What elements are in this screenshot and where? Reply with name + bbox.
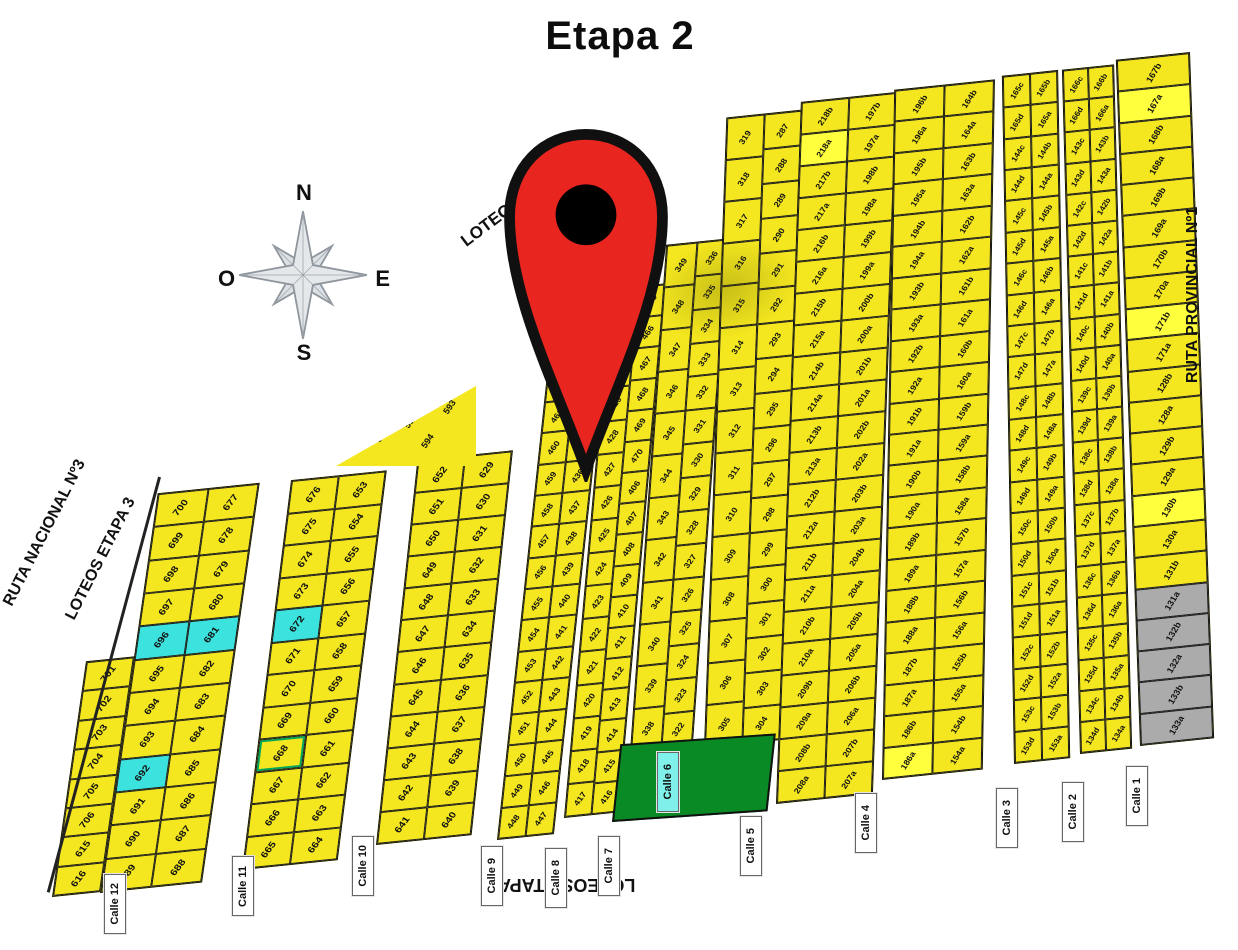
lot-211b: 211b <box>785 543 834 580</box>
lot-408: 408 <box>614 532 643 566</box>
lot-439: 439 <box>552 552 583 586</box>
lot-438: 438 <box>556 521 587 555</box>
lot-458: 458 <box>532 493 563 527</box>
location-pin-icon[interactable] <box>488 120 684 482</box>
lot-147a: 147a <box>1035 352 1063 386</box>
lot-642: 642 <box>381 775 431 812</box>
lot-658: 658 <box>314 633 365 670</box>
lot-645: 645 <box>391 680 441 717</box>
lot-135a: 135a <box>1104 655 1130 689</box>
lot-330: 330 <box>681 441 714 478</box>
green-park-area <box>612 733 776 822</box>
lot-203b: 203b <box>835 475 884 512</box>
lot-668: 668 <box>255 735 306 772</box>
lot-413: 413 <box>600 687 629 721</box>
street-label-calle-7: Calle 7 <box>598 836 620 896</box>
lot-140b: 140b <box>1095 314 1121 348</box>
lot-669: 669 <box>259 702 310 739</box>
lot-144c: 144c <box>1004 136 1032 170</box>
lot-653: 653 <box>335 471 386 508</box>
lot-150a: 150a <box>1038 539 1066 573</box>
lot-306: 306 <box>707 659 746 705</box>
lot-289: 289 <box>761 180 800 219</box>
lot-140c: 140c <box>1070 316 1096 350</box>
lot-294: 294 <box>755 355 794 394</box>
lot-424: 424 <box>586 551 615 587</box>
lot-423: 423 <box>583 584 612 620</box>
lot-207b: 207b <box>826 729 875 766</box>
lot-202b: 202b <box>837 411 886 448</box>
lot-318: 318 <box>724 156 763 202</box>
lot-209b: 209b <box>780 671 829 708</box>
lot-139c: 139c <box>1071 378 1097 412</box>
lot-211a: 211a <box>784 575 833 612</box>
lot-153b: 153b <box>1041 695 1069 729</box>
lot-212a: 212a <box>786 512 835 549</box>
lot-205b: 205b <box>830 602 879 639</box>
lot-141c: 141c <box>1068 254 1094 288</box>
lot-142d: 142d <box>1067 223 1093 257</box>
lot-197a: 197a <box>847 125 896 162</box>
street-label-calle-2: Calle 2 <box>1062 782 1084 842</box>
compass-north-label: N <box>296 180 312 206</box>
lot-165b: 165b <box>1030 71 1058 105</box>
lot-145b: 145b <box>1032 196 1060 230</box>
lot-630: 630 <box>458 483 508 520</box>
lot-308: 308 <box>709 576 748 622</box>
lot-675: 675 <box>284 509 335 546</box>
lot-213b: 213b <box>789 416 838 453</box>
lot-142c: 142c <box>1066 192 1092 226</box>
lot-633: 633 <box>448 579 498 616</box>
lot-148c: 148c <box>1008 386 1036 420</box>
lot-593: 593 <box>442 398 459 416</box>
lot-310: 310 <box>712 492 751 538</box>
lot-664: 664 <box>290 827 341 864</box>
lot-449: 449 <box>501 774 532 808</box>
lot-213a: 213a <box>788 448 837 485</box>
lot-332: 332 <box>685 374 718 411</box>
lot-143d: 143d <box>1065 161 1091 195</box>
lot-135b: 135b <box>1103 624 1129 658</box>
lot-311: 311 <box>714 450 753 496</box>
lot-133a: 133a <box>1140 706 1213 745</box>
lot-417: 417 <box>565 781 594 817</box>
lot-446: 446 <box>529 771 560 805</box>
lot-295: 295 <box>754 390 793 429</box>
lot-138b: 138b <box>1098 438 1124 472</box>
lot-641: 641 <box>377 807 427 844</box>
lot-328: 328 <box>676 509 709 546</box>
lot-137a: 137a <box>1100 531 1126 565</box>
lot-319: 319 <box>726 114 765 160</box>
lot-287: 287 <box>763 111 802 150</box>
lot-148d: 148d <box>1009 417 1037 451</box>
lot-647: 647 <box>398 616 448 653</box>
lot-657: 657 <box>318 601 369 638</box>
lot-199a: 199a <box>843 252 892 289</box>
lot-672: 672 <box>272 606 323 643</box>
lot-206b: 206b <box>828 666 877 703</box>
lot-457: 457 <box>528 524 559 558</box>
lot-166b: 166b <box>1088 65 1114 99</box>
lot-149c: 149c <box>1009 448 1037 482</box>
lot-217a: 217a <box>797 193 846 230</box>
compass-east-label: E <box>375 266 390 292</box>
lot-147b: 147b <box>1034 321 1062 355</box>
lot-202a: 202a <box>836 443 885 480</box>
lot-660: 660 <box>306 698 357 735</box>
street-label-calle-3: Calle 3 <box>996 788 1018 848</box>
lot-343: 343 <box>646 495 679 540</box>
lot-138a: 138a <box>1099 469 1125 503</box>
lot-198a: 198a <box>845 188 894 225</box>
lot-650: 650 <box>408 520 458 557</box>
lot-150d: 150d <box>1011 542 1039 576</box>
lot-153a: 153a <box>1042 726 1070 760</box>
lot-440: 440 <box>549 584 580 618</box>
lot-666: 666 <box>247 799 298 836</box>
lot-140d: 140d <box>1070 347 1096 381</box>
lot-166a: 166a <box>1089 96 1115 130</box>
lot-297: 297 <box>751 460 790 499</box>
block-calle11-10: 6526516506496486476466456446436426416296… <box>376 450 513 845</box>
lot-644: 644 <box>387 711 437 748</box>
lot-136d: 136d <box>1077 595 1103 629</box>
lot-146a: 146a <box>1034 289 1062 323</box>
lot-425: 425 <box>589 518 618 554</box>
lot-210b: 210b <box>783 607 832 644</box>
lot-325: 325 <box>669 610 702 647</box>
lot-149b: 149b <box>1037 445 1065 479</box>
lot-418: 418 <box>568 748 597 784</box>
compass-star-icon <box>232 204 374 346</box>
lot-149d: 149d <box>1010 479 1038 513</box>
lot-591: 591 <box>373 426 390 444</box>
lot-152d: 152d <box>1013 666 1041 700</box>
lot-214a: 214a <box>791 384 840 421</box>
lot-341: 341 <box>640 579 673 624</box>
lot-142b: 142b <box>1091 189 1117 223</box>
block-calle4-3: 196b196a195b195a194b194a193b193a192b192a… <box>882 79 995 780</box>
lot-444: 444 <box>536 708 567 742</box>
lot-217b: 217b <box>798 161 847 198</box>
lot-145d: 145d <box>1006 230 1034 264</box>
lot-631: 631 <box>455 515 505 552</box>
lot-422: 422 <box>580 617 609 653</box>
lot-340: 340 <box>637 621 670 666</box>
lot-203a: 203a <box>833 507 882 544</box>
lot-134d: 134d <box>1080 719 1106 753</box>
lot-659: 659 <box>310 665 361 702</box>
block-triangle-590s: 590591592593594 <box>336 386 476 466</box>
lot-288: 288 <box>762 146 801 185</box>
lot-674: 674 <box>280 541 331 578</box>
lot-147d: 147d <box>1008 355 1036 389</box>
lot-151d: 151d <box>1012 604 1040 638</box>
street-label-calle-10: Calle 10 <box>352 836 374 896</box>
lot-150c: 150c <box>1011 510 1039 544</box>
lot-407: 407 <box>616 501 645 535</box>
lot-205a: 205a <box>829 634 878 671</box>
lot-339: 339 <box>634 664 667 709</box>
lot-323: 323 <box>664 677 697 714</box>
lot-154a: 154a <box>932 737 982 773</box>
lot-649: 649 <box>405 552 455 589</box>
lot-326: 326 <box>671 576 704 613</box>
lot-663: 663 <box>294 795 345 832</box>
lot-151b: 151b <box>1039 570 1067 604</box>
lot-662: 662 <box>298 762 349 799</box>
lot-309: 309 <box>711 534 750 580</box>
lot-137b: 137b <box>1099 500 1125 534</box>
lot-671: 671 <box>268 638 319 675</box>
lot-148a: 148a <box>1036 414 1064 448</box>
lot-212b: 212b <box>787 480 836 517</box>
lot-204a: 204a <box>831 570 880 607</box>
lot-165a: 165a <box>1031 102 1059 136</box>
lot-637: 637 <box>434 707 484 744</box>
lot-143a: 143a <box>1090 158 1116 192</box>
compass-rose: N S O E <box>218 180 390 366</box>
lot-142a: 142a <box>1092 221 1118 255</box>
lot-442: 442 <box>542 646 573 680</box>
lot-165d: 165d <box>1003 105 1031 139</box>
lot-153c: 153c <box>1014 698 1042 732</box>
lot-139b: 139b <box>1096 376 1122 410</box>
lot-145a: 145a <box>1033 227 1061 261</box>
lot-421: 421 <box>577 649 606 685</box>
block-calle12-11: 6766756746736726716706696686676666656536… <box>242 470 387 870</box>
lot-634: 634 <box>444 611 494 648</box>
lot-215a: 215a <box>793 321 842 358</box>
lot-143b: 143b <box>1090 127 1116 161</box>
lot-333: 333 <box>688 340 721 377</box>
lot-324: 324 <box>666 643 699 680</box>
street-label-calle-8: Calle 8 <box>545 848 567 908</box>
lot-144d: 144d <box>1005 167 1033 201</box>
lot-137d: 137d <box>1075 533 1101 567</box>
lot-443: 443 <box>539 677 570 711</box>
lot-646: 646 <box>394 648 444 685</box>
lot-218a: 218a <box>800 130 849 167</box>
lot-216a: 216a <box>795 257 844 294</box>
street-label-calle-11: Calle 11 <box>232 856 254 916</box>
lot-141d: 141d <box>1069 285 1095 319</box>
lot-166c: 166c <box>1063 68 1089 102</box>
lot-139a: 139a <box>1097 407 1123 441</box>
lot-206a: 206a <box>827 698 876 735</box>
lot-594: 594 <box>419 432 436 450</box>
lot-302: 302 <box>745 634 784 673</box>
lot-138d: 138d <box>1074 471 1100 505</box>
lot-146b: 146b <box>1033 258 1061 292</box>
lot-215b: 215b <box>794 289 843 326</box>
lot-419: 419 <box>571 715 600 751</box>
lot-411: 411 <box>605 625 634 659</box>
lot-152c: 152c <box>1013 635 1041 669</box>
lot-300: 300 <box>747 565 786 604</box>
lot-150b: 150b <box>1038 508 1066 542</box>
lot-210a: 210a <box>782 639 831 676</box>
lot-165c: 165c <box>1003 74 1031 108</box>
lot-412: 412 <box>603 656 632 690</box>
lot-151c: 151c <box>1012 573 1040 607</box>
lot-299: 299 <box>749 530 788 569</box>
lot-200b: 200b <box>841 284 890 321</box>
lot-452: 452 <box>512 680 543 714</box>
lot-655: 655 <box>327 536 378 573</box>
lot-134a: 134a <box>1105 717 1131 751</box>
lot-199b: 199b <box>844 220 893 257</box>
lot-651: 651 <box>411 488 461 525</box>
lot-688: 688 <box>151 848 206 886</box>
lot-296: 296 <box>752 425 791 464</box>
lot-654: 654 <box>331 504 382 541</box>
street-label-calle-12: Calle 12 <box>104 874 126 934</box>
lot-166d: 166d <box>1064 99 1090 133</box>
lot-447: 447 <box>526 802 557 836</box>
lot-331: 331 <box>683 408 716 445</box>
lot-445: 445 <box>532 740 563 774</box>
lot-148b: 148b <box>1035 383 1063 417</box>
lot-667: 667 <box>251 767 302 804</box>
subdivision-map: Etapa 2 N S O E 701702703704705706615616… <box>0 0 1238 950</box>
street-label-calle-4: Calle 4 <box>855 793 877 853</box>
lot-450: 450 <box>505 742 536 776</box>
lot-410: 410 <box>608 594 637 628</box>
lot-140a: 140a <box>1095 345 1121 379</box>
block-calle3-2: 165c165d144c144d145c145d146c146d147c147d… <box>1002 70 1070 764</box>
lot-656: 656 <box>323 568 374 605</box>
lot-590: 590 <box>346 440 363 458</box>
lot-661: 661 <box>302 730 353 767</box>
lot-141a: 141a <box>1094 283 1120 317</box>
lot-448: 448 <box>498 805 529 839</box>
lot-670: 670 <box>263 670 314 707</box>
lot-426: 426 <box>592 485 621 521</box>
lot-676: 676 <box>288 476 339 513</box>
lot-208b: 208b <box>778 734 827 771</box>
lot-204b: 204b <box>832 538 881 575</box>
lot-342: 342 <box>643 537 676 582</box>
lot-144a: 144a <box>1032 165 1060 199</box>
lot-151a: 151a <box>1039 601 1067 635</box>
lot-136c: 136c <box>1076 564 1102 598</box>
lot-218b: 218b <box>801 98 850 135</box>
lot-146d: 146d <box>1007 292 1035 326</box>
lot-152a: 152a <box>1040 664 1068 698</box>
lot-198b: 198b <box>846 157 895 194</box>
lot-456: 456 <box>525 555 556 589</box>
lot-592: 592 <box>402 412 419 430</box>
lot-134c: 134c <box>1079 688 1105 722</box>
lot-209a: 209a <box>779 703 828 740</box>
lot-143c: 143c <box>1065 130 1091 164</box>
lot-441: 441 <box>546 615 577 649</box>
lot-313: 313 <box>717 366 756 412</box>
lot-640: 640 <box>424 802 474 839</box>
lot-307: 307 <box>708 617 747 663</box>
lot-643: 643 <box>384 743 434 780</box>
lot-201a: 201a <box>838 379 887 416</box>
lot-301: 301 <box>746 599 785 638</box>
lot-201b: 201b <box>839 348 888 385</box>
lot-636: 636 <box>438 675 488 712</box>
lot-147c: 147c <box>1007 323 1035 357</box>
lot-420: 420 <box>574 682 603 718</box>
lot-303: 303 <box>744 669 783 708</box>
lot-455: 455 <box>522 586 553 620</box>
lot-437: 437 <box>559 490 590 524</box>
street-label-calle-9: Calle 9 <box>481 846 503 906</box>
lot-135d: 135d <box>1079 657 1105 691</box>
lot-616: 616 <box>53 862 104 896</box>
lot-632: 632 <box>451 547 501 584</box>
lot-138c: 138c <box>1073 440 1099 474</box>
lot-153d: 153d <box>1014 729 1042 763</box>
lot-298: 298 <box>750 495 789 534</box>
lot-638: 638 <box>431 739 481 776</box>
lot-312: 312 <box>715 408 754 454</box>
lot-635: 635 <box>441 643 491 680</box>
lot-152b: 152b <box>1040 632 1068 666</box>
street-label-calle-6: Calle 6 <box>657 752 679 812</box>
lot-149a: 149a <box>1037 476 1065 510</box>
lot-200a: 200a <box>840 316 889 353</box>
lot-197b: 197b <box>848 93 897 130</box>
lot-139d: 139d <box>1072 409 1098 443</box>
lot-136b: 136b <box>1101 562 1127 596</box>
lot-673: 673 <box>276 573 327 610</box>
lot-214b: 214b <box>792 352 841 389</box>
lot-134b: 134b <box>1104 686 1130 720</box>
lot-144b: 144b <box>1031 133 1059 167</box>
lot-409: 409 <box>611 563 640 597</box>
lot-639: 639 <box>427 770 477 807</box>
lot-186a: 186a <box>883 742 933 778</box>
lot-327: 327 <box>673 542 706 579</box>
lot-648: 648 <box>401 584 451 621</box>
lot-145c: 145c <box>1005 199 1033 233</box>
lot-453: 453 <box>515 649 546 683</box>
lot-136a: 136a <box>1102 593 1128 627</box>
lot-454: 454 <box>518 618 549 652</box>
lot-451: 451 <box>508 711 539 745</box>
lot-146c: 146c <box>1006 261 1034 295</box>
street-label-calle-1: Calle 1 <box>1126 766 1148 826</box>
ruta-provincial-1: RUTA PROVINCIAL Nº1 <box>1184 150 1202 440</box>
lot-135c: 135c <box>1078 626 1104 660</box>
lot-208a: 208a <box>777 766 826 803</box>
lot-137c: 137c <box>1074 502 1100 536</box>
lot-216b: 216b <box>796 225 845 262</box>
street-label-calle-5: Calle 5 <box>740 816 762 876</box>
lot-141b: 141b <box>1093 252 1119 286</box>
